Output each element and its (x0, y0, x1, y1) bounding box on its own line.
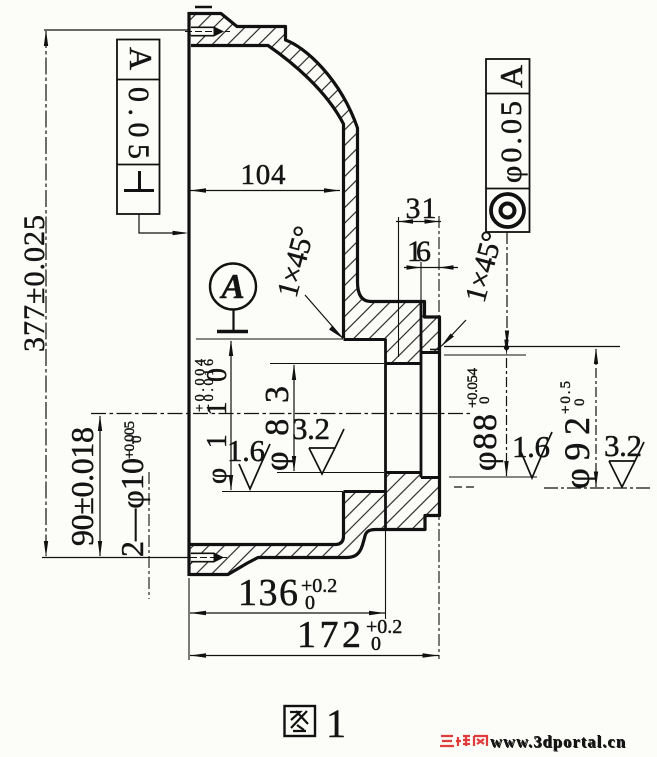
svg-text:377±0.025: 377±0.025 (18, 215, 51, 352)
svg-text:φ0.05: φ0.05 (495, 101, 528, 183)
svg-text:A: A (219, 267, 244, 306)
svg-text:φ92: φ92 (557, 417, 597, 489)
svg-text:104: 104 (241, 159, 287, 191)
svg-text:1.6: 1.6 (227, 433, 265, 468)
svg-text:172: 172 (297, 614, 361, 656)
svg-text:A: A (123, 47, 159, 70)
svg-text:0: 0 (477, 397, 493, 405)
svg-text:0: 0 (371, 633, 381, 655)
svg-text:1×45°: 1×45° (271, 223, 322, 301)
svg-text:www.3dportal.cn: www.3dportal.cn (490, 732, 625, 751)
svg-text:1×45°: 1×45° (459, 228, 510, 306)
svg-text:136: 136 (238, 572, 298, 614)
svg-text:0: 0 (129, 436, 145, 444)
svg-text:0: 0 (572, 399, 588, 407)
svg-text:31: 31 (406, 192, 437, 225)
svg-text:1: 1 (326, 701, 346, 746)
svg-text:3.2: 3.2 (604, 428, 642, 463)
svg-text:φ88: φ88 (467, 414, 504, 471)
svg-text:90±0.018: 90±0.018 (64, 427, 100, 546)
svg-text:0.05: 0.05 (122, 87, 155, 159)
svg-text:+0.5: +0.5 (558, 381, 574, 414)
svg-text:2—φ10: 2—φ10 (114, 458, 150, 557)
svg-text:A: A (493, 65, 529, 88)
svg-text:0: 0 (305, 592, 315, 614)
svg-text:1.6: 1.6 (512, 429, 550, 464)
svg-text:3.2: 3.2 (292, 411, 330, 446)
svg-text:16: 16 (407, 235, 431, 268)
